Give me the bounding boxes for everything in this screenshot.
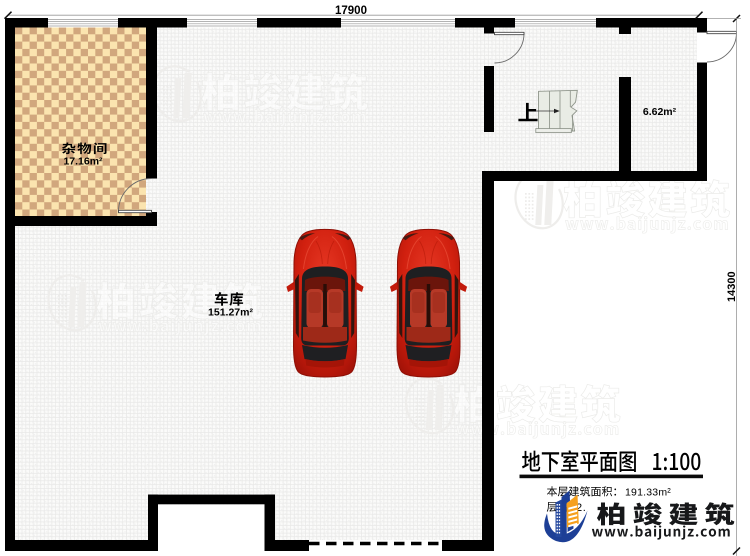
svg-text:151.27m²: 151.27m² <box>208 307 253 319</box>
svg-text:17.16m²: 17.16m² <box>63 156 103 168</box>
svg-text:17900: 17900 <box>335 5 367 17</box>
svg-text:191.33m²: 191.33m² <box>625 487 671 499</box>
svg-text:6.62m²: 6.62m² <box>643 106 677 118</box>
svg-text:14300: 14300 <box>726 271 738 302</box>
